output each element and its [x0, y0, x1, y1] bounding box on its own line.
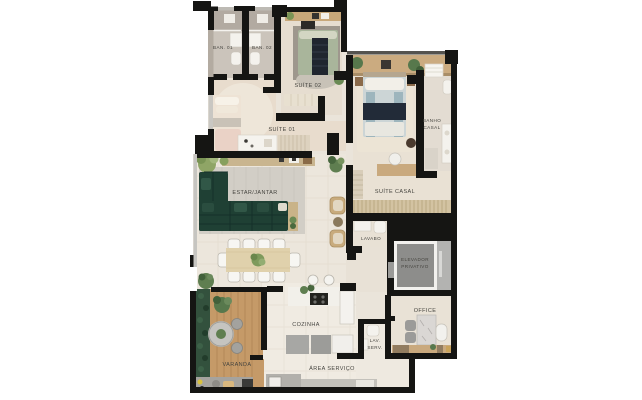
svg-text:PRIVATIVO: PRIVATIVO: [401, 264, 428, 269]
svg-text:ESTAR/JANTAR: ESTAR/JANTAR: [232, 190, 277, 196]
svg-text:ELEVADOR: ELEVADOR: [401, 257, 429, 262]
svg-text:BANHO: BANHO: [423, 118, 441, 123]
svg-text:BAN. 02: BAN. 02: [252, 45, 272, 50]
svg-text:BAN. 01: BAN. 01: [213, 45, 233, 50]
svg-text:SUÍTE 02: SUÍTE 02: [294, 82, 321, 89]
svg-text:OFFICE: OFFICE: [414, 308, 437, 314]
svg-text:SERV.: SERV.: [367, 345, 382, 350]
svg-text:SUÍTE CASAL: SUÍTE CASAL: [375, 188, 415, 195]
svg-text:CASAL: CASAL: [423, 125, 440, 130]
svg-text:COZINHA: COZINHA: [292, 322, 320, 328]
svg-text:LAVABO: LAVABO: [361, 236, 381, 241]
svg-text:SUÍTE 01: SUÍTE 01: [268, 126, 295, 133]
svg-text:ÁREA SERVIÇO: ÁREA SERVIÇO: [309, 365, 355, 372]
svg-text:VARANDA: VARANDA: [223, 362, 252, 368]
svg-text:LAV.: LAV.: [370, 338, 381, 343]
